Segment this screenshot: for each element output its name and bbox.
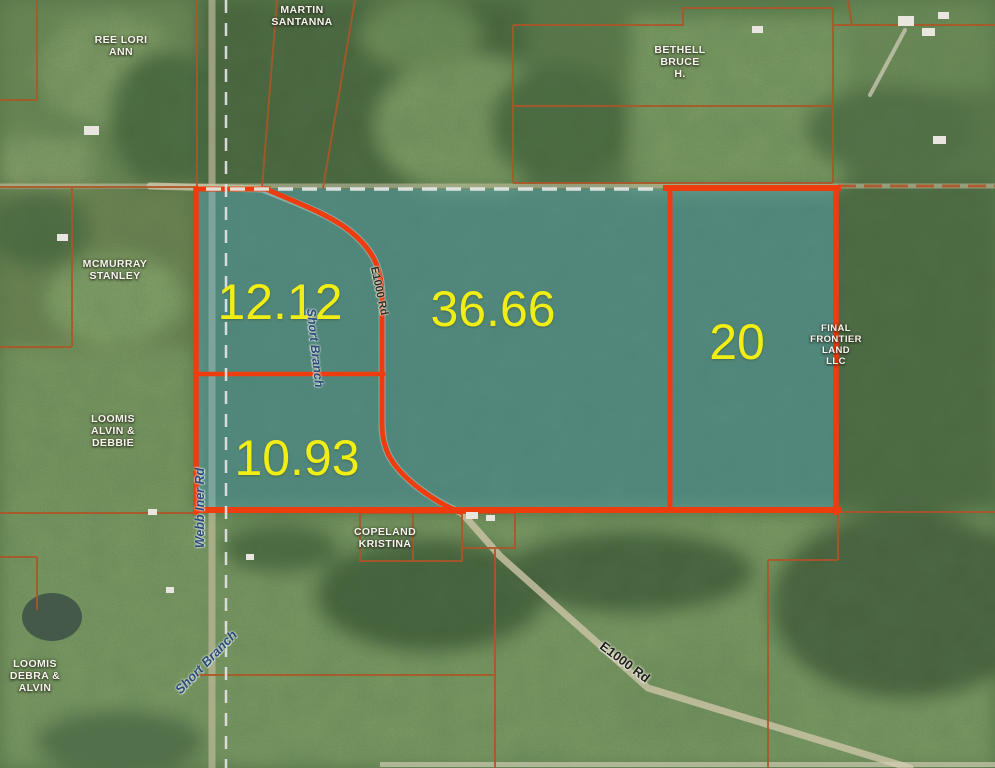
road-label-e1000-lower: E1000 Rd: [597, 638, 653, 685]
owner-line: MARTIN: [271, 4, 332, 16]
owner-line: BRUCE: [654, 56, 705, 68]
plat-map: REE LORI ANN MARTIN SANTANNA BETHELL BRU…: [0, 0, 995, 768]
acreage-label-10-93: 10.93: [234, 429, 359, 487]
owner-label-copeland-kristina: COPELAND KRISTINA: [354, 526, 416, 550]
owner-label-bethell-bruce: BETHELL BRUCE H.: [654, 44, 705, 80]
owner-line: LOOMIS: [10, 658, 60, 670]
acreage-label-20: 20: [709, 313, 765, 371]
owner-line: STANLEY: [83, 270, 148, 282]
owner-line: ALVIN &: [91, 425, 135, 437]
road-label-webb: Webb Iner Rd: [193, 468, 207, 548]
owner-line: KRISTINA: [354, 538, 416, 550]
stream-label-short-branch-lower: Short Branch: [172, 627, 240, 697]
acreage-label-12-12: 12.12: [217, 273, 342, 331]
owner-line: ALVIN: [10, 682, 60, 694]
owner-line: LLC: [810, 357, 862, 368]
owner-label-loomis-alvin-debbie: LOOMIS ALVIN & DEBBIE: [91, 413, 135, 449]
owner-line: ANN: [95, 46, 148, 58]
road-label-e1000-upper: E1000 Rd: [368, 266, 390, 317]
owner-label-ree-lori-ann: REE LORI ANN: [95, 34, 148, 58]
owner-line: DEBRA &: [10, 670, 60, 682]
owner-label-final-frontier-land: FINAL FRONTIER LAND LLC: [810, 324, 862, 368]
acreage-label-36-66: 36.66: [430, 280, 555, 338]
owner-line: REE LORI: [95, 34, 148, 46]
owner-line: DEBBIE: [91, 437, 135, 449]
owner-label-martin-santanna: MARTIN SANTANNA: [271, 4, 332, 28]
owner-line: COPELAND: [354, 526, 416, 538]
owner-line: BETHELL: [654, 44, 705, 56]
owner-label-loomis-debra-alvin: LOOMIS DEBRA & ALVIN: [10, 658, 60, 694]
owner-line: SANTANNA: [271, 16, 332, 28]
map-labels: REE LORI ANN MARTIN SANTANNA BETHELL BRU…: [0, 0, 995, 768]
owner-label-mcmurray-stanley: MCMURRAY STANLEY: [83, 258, 148, 282]
owner-line: MCMURRAY: [83, 258, 148, 270]
owner-line: H.: [654, 68, 705, 80]
owner-line: LOOMIS: [91, 413, 135, 425]
